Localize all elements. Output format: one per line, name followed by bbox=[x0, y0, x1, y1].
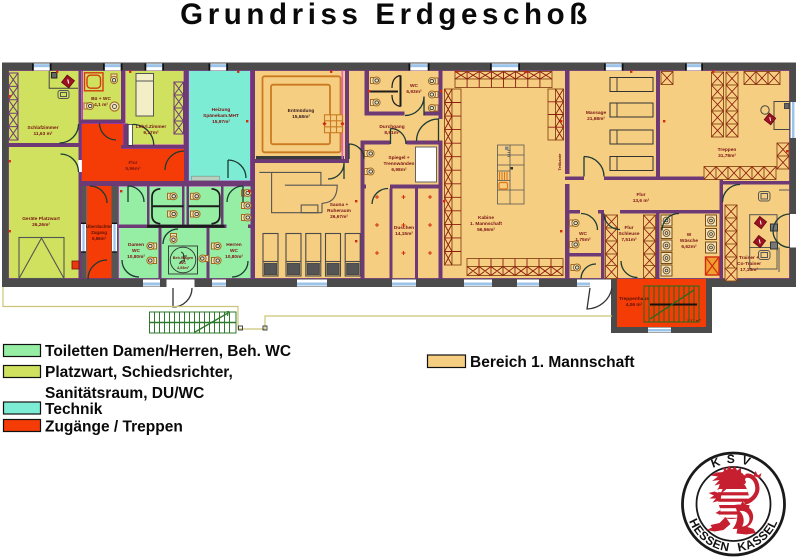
svg-text:WC: WC bbox=[579, 231, 588, 237]
svg-text:Herren: Herren bbox=[226, 242, 242, 248]
svg-text:56,56m²: 56,56m² bbox=[477, 227, 495, 233]
svg-text:6,98m²: 6,98m² bbox=[391, 167, 407, 173]
svg-text:Wäsche: Wäsche bbox=[680, 238, 698, 244]
svg-text:10,80m²: 10,80m² bbox=[127, 254, 145, 260]
svg-text:Damen: Damen bbox=[128, 242, 144, 248]
svg-text:Beh.Wagen: Beh.Wagen bbox=[173, 256, 194, 260]
svg-text:Lehrl.Zimmer: Lehrl.Zimmer bbox=[136, 124, 167, 130]
svg-text:Co-Trainer: Co-Trainer bbox=[737, 261, 761, 267]
svg-text:8,91m²: 8,91m² bbox=[384, 130, 400, 136]
svg-text:Flur: Flur bbox=[624, 225, 633, 231]
svg-text:1. Mannschaft: 1. Mannschaft bbox=[470, 221, 502, 227]
svg-text:Flur: Flur bbox=[128, 160, 137, 166]
svg-text:1,75m²: 1,75m² bbox=[575, 237, 591, 243]
svg-text:Zugang: Zugang bbox=[91, 230, 107, 235]
svg-text:Sauna +: Sauna + bbox=[330, 202, 349, 208]
svg-text:14,15m²: 14,15m² bbox=[395, 231, 413, 237]
svg-text:7,51m²: 7,51m² bbox=[621, 237, 637, 243]
svg-text:Durchgang: Durchgang bbox=[379, 124, 404, 130]
svg-text:Toiletten Damen/Herren, Beh. W: Toiletten Damen/Herren, Beh. WC bbox=[45, 343, 291, 360]
svg-text:Trennwänden: Trennwänden bbox=[384, 161, 415, 167]
svg-text:W: W bbox=[687, 232, 692, 238]
svg-text:Treppen: Treppen bbox=[718, 147, 737, 153]
svg-text:Zugänge / Treppen: Zugänge / Treppen bbox=[45, 419, 183, 436]
svg-text:5,96m²: 5,96m² bbox=[125, 166, 141, 172]
svg-text:WC: WC bbox=[410, 83, 419, 89]
svg-text:5,56m²: 5,56m² bbox=[92, 236, 106, 241]
svg-text:6,93m²: 6,93m² bbox=[406, 89, 422, 95]
svg-text:WC: WC bbox=[230, 248, 239, 254]
svg-text:Flur: Flur bbox=[636, 192, 645, 198]
svg-text:Technik: Technik bbox=[45, 401, 103, 418]
svg-text:Heizung: Heizung bbox=[212, 107, 231, 113]
svg-text:Schleuse: Schleuse bbox=[618, 231, 639, 237]
svg-text:6,62m²: 6,62m² bbox=[681, 244, 697, 250]
svg-text:26,67m²: 26,67m² bbox=[330, 214, 348, 220]
svg-text:Entmüdung: Entmüdung bbox=[288, 108, 315, 114]
svg-text:4,93m²: 4,93m² bbox=[177, 266, 190, 270]
svg-text:Geräte Platzwart: Geräte Platzwart bbox=[22, 216, 60, 222]
svg-text:Treppenhaus: Treppenhaus bbox=[619, 296, 649, 302]
svg-text:WC: WC bbox=[180, 261, 187, 265]
svg-text:Schlafzimmer: Schlafzimmer bbox=[27, 125, 58, 131]
svg-text:15,68m²: 15,68m² bbox=[292, 114, 310, 120]
svg-text:17,15m²: 17,15m² bbox=[740, 267, 758, 273]
svg-text:Bü + WC: Bü + WC bbox=[91, 96, 111, 102]
svg-text:Spiegel +: Spiegel + bbox=[388, 155, 409, 161]
svg-text:31,78m²: 31,78m² bbox=[718, 153, 736, 159]
svg-text:Duschen: Duschen bbox=[394, 225, 414, 231]
svg-text:Spänekam.MHT: Spänekam.MHT bbox=[203, 113, 239, 119]
svg-text:Grundriss Erdgeschoß: Grundriss Erdgeschoß bbox=[180, 0, 592, 31]
svg-text:10,80m²: 10,80m² bbox=[225, 254, 243, 260]
svg-text:Bereich 1. Mannschaft: Bereich 1. Mannschaft bbox=[470, 354, 635, 371]
svg-text:Sanitätsraum, DU/WC: Sanitätsraum, DU/WC bbox=[45, 385, 204, 402]
svg-text:Massage: Massage bbox=[586, 110, 607, 116]
svg-text:Platzwart, Schiedsrichter,: Platzwart, Schiedsrichter, bbox=[45, 364, 233, 381]
svg-text:26,26m²: 26,26m² bbox=[32, 222, 50, 228]
svg-text:Überdachter: Überdachter bbox=[86, 224, 112, 229]
svg-text:Trainer +: Trainer + bbox=[739, 255, 759, 261]
svg-text:13,6 m²: 13,6 m² bbox=[633, 198, 650, 204]
svg-text:21,68m²: 21,68m² bbox=[587, 116, 605, 122]
svg-text:4,1 m²: 4,1 m² bbox=[94, 102, 108, 108]
svg-text:Teilkante: Teilkante bbox=[557, 153, 562, 171]
svg-text:11,63 m²: 11,63 m² bbox=[34, 131, 53, 137]
svg-text:Ruheraum: Ruheraum bbox=[327, 208, 351, 214]
svg-text:WC: WC bbox=[132, 248, 141, 254]
svg-text:Kabine: Kabine bbox=[478, 215, 494, 221]
svg-text:9,17m²: 9,17m² bbox=[143, 130, 159, 136]
svg-text:4,06 m²: 4,06 m² bbox=[626, 302, 643, 308]
svg-text:15,97m²: 15,97m² bbox=[212, 119, 230, 125]
